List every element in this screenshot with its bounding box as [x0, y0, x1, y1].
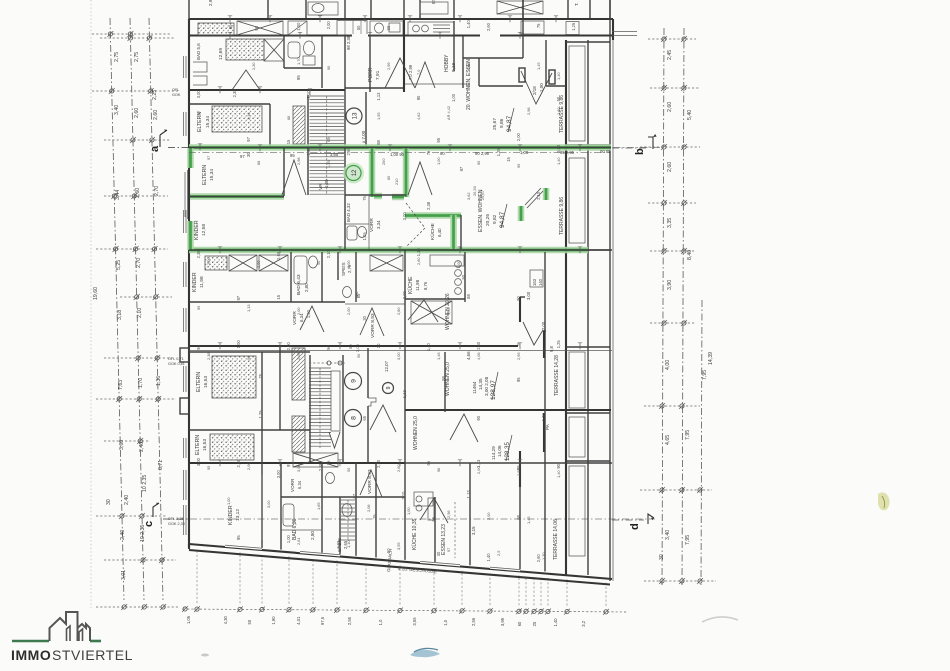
svg-text:1,36: 1,36 [156, 376, 162, 386]
svg-text:95: 95 [290, 153, 295, 158]
svg-text:3,44: 3,44 [115, 190, 121, 200]
svg-text:8,76: 8,76 [423, 281, 428, 290]
svg-text:2,00: 2,00 [346, 260, 351, 268]
svg-text:1,00: 1,00 [226, 497, 231, 505]
svg-text:11464: 11464 [472, 381, 477, 394]
svg-text:PORR: PORR [368, 67, 374, 82]
svg-text:1,40: 1,40 [306, 147, 311, 156]
svg-text:7,63: 7,63 [118, 380, 124, 390]
svg-text:2,00: 2,00 [346, 307, 351, 315]
svg-text:2,60: 2,60 [416, 257, 421, 265]
svg-text:2,98: 2,98 [526, 107, 531, 115]
svg-text:1,00: 1,00 [406, 507, 411, 515]
svg-text:1,00: 1,00 [286, 534, 291, 543]
svg-text:1,40: 1,40 [306, 309, 311, 318]
svg-text:3,55: 3,55 [396, 542, 401, 550]
svg-text:15,34: 15,34 [205, 116, 211, 128]
svg-text:ELTERN: ELTERN [196, 372, 202, 392]
svg-text:97: 97 [236, 295, 241, 300]
svg-text:97,6: 97,6 [320, 616, 325, 625]
svg-text:50: 50 [461, 274, 466, 279]
svg-text:2,61: 2,61 [296, 537, 301, 545]
svg-text:14,39: 14,39 [708, 352, 714, 365]
svg-text:2,06: 2,06 [296, 352, 301, 360]
svg-text:2,56: 2,56 [446, 510, 451, 518]
svg-text:c: c [143, 521, 155, 527]
svg-text:97: 97 [286, 462, 291, 467]
svg-text:2,97: 2,97 [208, 0, 213, 6]
svg-text:00 05: 00 05 [600, 149, 611, 154]
svg-text:2,80: 2,80 [304, 283, 309, 292]
svg-text:97: 97 [196, 111, 201, 115]
svg-text:2,80: 2,80 [310, 531, 315, 540]
svg-text:1,40: 1,40 [426, 342, 431, 351]
svg-text:97: 97 [352, 493, 357, 498]
svg-text:2,00: 2,00 [286, 342, 291, 351]
svg-text:3,00: 3,00 [196, 90, 201, 99]
svg-text:2,70: 2,70 [154, 186, 160, 196]
svg-text:30: 30 [436, 551, 441, 556]
svg-text:88: 88 [286, 116, 291, 120]
svg-text:1,13: 1,13 [376, 92, 381, 101]
svg-text:60: 60 [517, 621, 522, 626]
svg-text:VORR: VORR [369, 218, 375, 232]
svg-text:3,65: 3,65 [330, 152, 339, 157]
svg-text:50: 50 [356, 25, 361, 30]
svg-text:2,00: 2,00 [336, 540, 341, 549]
svg-text:3,55: 3,55 [412, 617, 417, 626]
svg-text:16,53: 16,53 [203, 376, 209, 388]
svg-text:AR 4,42: AR 4,42 [446, 106, 451, 120]
svg-text:75: 75 [258, 373, 263, 378]
svg-text:96: 96 [436, 468, 441, 472]
svg-text:97: 97 [446, 548, 451, 552]
svg-text:4,65: 4,65 [665, 435, 671, 445]
svg-text:1,0: 1,0 [443, 619, 448, 625]
svg-text:5,25: 5,25 [116, 260, 122, 270]
svg-text:9,19: 9,19 [451, 62, 457, 72]
svg-text:3,35: 3,35 [667, 218, 673, 228]
svg-text:9,82: 9,82 [492, 214, 498, 224]
svg-text:90: 90 [228, 24, 233, 29]
svg-text:BAD 6,43: BAD 6,43 [296, 274, 302, 295]
svg-text:KINDER: KINDER [194, 220, 200, 240]
svg-text:2,00: 2,00 [456, 260, 461, 268]
svg-text:15: 15 [326, 460, 331, 465]
svg-text:97: 97 [246, 136, 251, 141]
svg-text:3,00: 3,00 [276, 470, 281, 479]
svg-text:12,07: 12,07 [384, 360, 389, 372]
svg-text:3,00: 3,00 [396, 352, 401, 360]
svg-text:1,90: 1,90 [271, 616, 276, 625]
svg-text:50: 50 [247, 619, 252, 624]
svg-text:1,13: 1,13 [246, 304, 251, 312]
svg-text:5,40: 5,40 [687, 110, 693, 120]
svg-text:95: 95 [206, 466, 211, 470]
svg-text:65: 65 [426, 460, 431, 465]
svg-text:3,00: 3,00 [402, 212, 407, 221]
svg-text:25,67: 25,67 [480, 190, 485, 200]
svg-text:2,38: 2,38 [196, 250, 201, 259]
svg-text:9: 9 [351, 379, 358, 383]
svg-text:1,65: 1,65 [316, 502, 321, 510]
svg-text:2,25: 2,25 [152, 90, 158, 100]
svg-text:75: 75 [426, 150, 431, 155]
svg-text:3,15: 3,15 [471, 526, 476, 535]
svg-text:1,20: 1,20 [324, 179, 329, 188]
svg-text:2,56: 2,56 [471, 617, 476, 626]
svg-text:2,75: 2,75 [134, 52, 140, 62]
svg-text:KÜCHE 10,35: KÜCHE 10,35 [411, 518, 418, 550]
svg-text:6,34: 6,34 [297, 480, 302, 489]
svg-text:88: 88 [376, 140, 381, 145]
svg-text:97: 97 [459, 166, 464, 171]
svg-text:2,40: 2,40 [124, 495, 130, 505]
svg-text:PA: PA [545, 423, 550, 430]
svg-text:50: 50 [556, 96, 561, 101]
svg-text:15: 15 [276, 294, 281, 299]
svg-text:OFL 2,35: OFL 2,35 [168, 517, 184, 521]
svg-text:1,40: 1,40 [556, 157, 561, 165]
svg-text:11,98: 11,98 [415, 279, 420, 291]
svg-text:1,10: 1,10 [346, 540, 351, 548]
svg-text:2/18: 2/18 [532, 86, 537, 95]
svg-text:9,8: 9,8 [549, 346, 554, 352]
svg-text:88: 88 [441, 376, 446, 381]
svg-text:50: 50 [386, 548, 391, 553]
svg-text:2,10: 2,10 [137, 308, 143, 318]
svg-text:2,00: 2,00 [486, 512, 491, 520]
svg-text:1,13: 1,13 [466, 490, 471, 499]
svg-text:2,10: 2,10 [536, 191, 541, 200]
svg-text:TERRASSE 9,86: TERRASSE 9,86 [559, 197, 565, 235]
svg-text:95: 95 [196, 306, 201, 310]
svg-text:BAD 5,6: BAD 5,6 [196, 43, 201, 60]
svg-text:4,01: 4,01 [296, 616, 301, 625]
svg-text:20,39: 20,39 [472, 186, 477, 196]
svg-text:ELTERN: ELTERN [195, 435, 201, 455]
svg-text:2,10: 2,10 [376, 459, 381, 468]
svg-text:90: 90 [416, 95, 421, 100]
svg-text:90: 90 [440, 151, 445, 156]
svg-text:x 7,00: x 7,00 [361, 130, 366, 143]
svg-text:1,00: 1,00 [236, 340, 241, 349]
svg-text:1,60: 1,60 [556, 107, 561, 115]
svg-text:2,60: 2,60 [134, 108, 140, 118]
svg-text:25: 25 [532, 621, 537, 626]
svg-text:14,35: 14,35 [478, 378, 483, 390]
svg-text:88: 88 [256, 161, 261, 165]
svg-text:9,86: 9,86 [499, 118, 505, 128]
svg-text:7,0: 7,0 [416, 69, 421, 75]
svg-text:TERRASSE 14,28: TERRASSE 14,28 [554, 355, 560, 396]
svg-text:2,60: 2,60 [135, 188, 141, 198]
svg-text:WOHNEN 25,0: WOHNEN 25,0 [413, 416, 419, 450]
svg-text:2,00: 2,00 [402, 290, 407, 299]
svg-text:9: 9 [386, 386, 392, 389]
svg-text:65: 65 [362, 415, 367, 420]
svg-text:2,60: 2,60 [667, 162, 673, 172]
svg-text:3,90: 3,90 [667, 280, 673, 290]
svg-text:97: 97 [206, 156, 211, 160]
svg-text:KÜCHE: KÜCHE [407, 276, 414, 294]
svg-text:25,67: 25,67 [492, 118, 498, 130]
svg-text:95: 95 [254, 25, 259, 30]
svg-text:12: 12 [352, 170, 358, 177]
svg-text:6,40: 6,40 [437, 228, 442, 237]
svg-text:1,45: 1,45 [526, 516, 531, 524]
svg-text:7,91: 7,91 [375, 70, 381, 80]
svg-text:1,70: 1,70 [296, 57, 301, 65]
svg-text:65: 65 [356, 293, 361, 298]
svg-text:1,70: 1,70 [138, 378, 144, 388]
svg-text:2,06: 2,06 [355, 343, 360, 352]
svg-text:2,30: 2,30 [251, 62, 256, 70]
svg-text:2,38: 2,38 [236, 459, 241, 468]
svg-text:2,60: 2,60 [667, 102, 673, 112]
svg-text:95: 95 [516, 164, 521, 168]
svg-text:ELTERN: ELTERN [202, 165, 208, 185]
svg-text:VORR: VORR [290, 478, 295, 492]
svg-text:2,00: 2,00 [246, 462, 251, 470]
svg-text:2,60: 2,60 [153, 110, 159, 120]
svg-text:VORR 8,93: VORR 8,93 [370, 313, 376, 338]
svg-text:2,95: 2,95 [516, 352, 521, 360]
svg-text:20,26: 20,26 [485, 214, 491, 226]
svg-text:2,10: 2,10 [326, 250, 331, 259]
svg-text:95: 95 [436, 137, 441, 142]
svg-text:1,40: 1,40 [556, 72, 561, 80]
svg-text:4,30: 4,30 [223, 615, 228, 624]
svg-text:210: 210 [394, 178, 399, 185]
svg-text:16,53: 16,53 [202, 439, 208, 451]
svg-text:1,45: 1,45 [536, 62, 541, 70]
svg-text:2,38: 2,38 [206, 352, 211, 360]
svg-text:3,34: 3,34 [376, 220, 381, 229]
svg-text:50: 50 [348, 344, 353, 349]
svg-text:1,13: 1,13 [402, 390, 407, 399]
svg-text:BAD 6,30: BAD 6,30 [292, 518, 298, 540]
svg-text:2,00: 2,00 [476, 466, 481, 474]
svg-text:2,45: 2,45 [667, 50, 673, 60]
svg-text:95: 95 [296, 75, 301, 80]
svg-text:7,0 2,99: 7,0 2,99 [408, 64, 413, 80]
svg-text:3,60: 3,60 [119, 440, 125, 450]
svg-text:1,25: 1,25 [571, 22, 576, 31]
svg-text:1,00: 1,00 [451, 93, 456, 102]
svg-text:b: b [634, 148, 646, 155]
svg-text:8: 8 [351, 416, 358, 420]
svg-text:2,06: 2,06 [366, 504, 371, 512]
svg-text:94,87: 94,87 [499, 211, 506, 228]
svg-text:1,55: 1,55 [326, 160, 331, 168]
svg-text:7,95: 7,95 [685, 535, 691, 545]
svg-text:2,95: 2,95 [516, 468, 521, 476]
svg-text:75: 75 [536, 23, 541, 28]
svg-text:1,25: 1,25 [362, 232, 367, 241]
svg-text:2,40: 2,40 [120, 530, 126, 540]
svg-text:19,60: 19,60 [93, 287, 99, 300]
svg-text:1,40: 1,40 [446, 307, 451, 315]
svg-text:2,38: 2,38 [318, 462, 323, 471]
svg-text:3,01: 3,01 [121, 570, 127, 580]
svg-text:65: 65 [431, 516, 436, 521]
svg-text:200: 200 [381, 158, 386, 165]
svg-text:90 2,96: 90 2,96 [475, 151, 490, 156]
svg-text:10 2,35: 10 2,35 [142, 475, 148, 492]
svg-text:KINDER: KINDER [192, 272, 198, 292]
svg-text:2,98: 2,98 [296, 157, 301, 165]
svg-text:90: 90 [516, 295, 521, 300]
svg-text:4,62: 4,62 [416, 112, 421, 120]
svg-text:2,60: 2,60 [396, 307, 401, 315]
svg-text:2,55: 2,55 [347, 616, 352, 625]
svg-text:12,69: 12,69 [218, 48, 224, 60]
svg-text:3,18: 3,18 [246, 112, 251, 120]
svg-text:90: 90 [556, 463, 561, 468]
svg-text:4,00: 4,00 [665, 360, 671, 370]
svg-text:97: 97 [240, 154, 245, 159]
svg-text:1,00: 1,00 [436, 157, 441, 165]
svg-text:2,60: 2,60 [476, 341, 481, 350]
svg-text:2,60: 2,60 [486, 22, 491, 31]
svg-text:13: 13 [351, 112, 358, 120]
svg-text:50: 50 [326, 345, 331, 350]
svg-text:2,40: 2,40 [139, 442, 145, 452]
svg-text:3,40: 3,40 [665, 530, 671, 540]
svg-text:15,34: 15,34 [209, 169, 215, 181]
svg-text:2,38: 2,38 [232, 89, 237, 98]
svg-text:3,00: 3,00 [296, 464, 301, 472]
svg-text:65: 65 [326, 137, 331, 142]
svg-text:14,06: 14,06 [497, 445, 502, 457]
svg-text:3,40: 3,40 [114, 105, 120, 115]
svg-text:2,00: 2,00 [516, 132, 521, 141]
svg-text:1,25: 1,25 [496, 148, 501, 157]
svg-text:1,48: 1,48 [436, 352, 441, 360]
svg-text:88: 88 [466, 294, 471, 299]
svg-text:2,60: 2,60 [346, 147, 351, 156]
svg-text:1,00 90: 1,00 90 [390, 152, 405, 157]
svg-text:IMMO: IMMO [11, 647, 51, 663]
svg-text:2,00: 2,00 [206, 257, 211, 265]
svg-text:1,00: 1,00 [520, 150, 529, 155]
svg-text:2,00: 2,00 [541, 321, 546, 330]
svg-text:90: 90 [476, 415, 481, 420]
svg-text:2,10: 2,10 [401, 491, 406, 500]
svg-text:4,66: 4,66 [466, 351, 471, 360]
svg-text:3,00: 3,00 [556, 144, 561, 153]
svg-text:a: a [149, 145, 161, 152]
svg-text:ESSEN: ESSEN [431, 0, 436, 4]
svg-text:3,00: 3,00 [196, 457, 201, 466]
svg-text:30: 30 [376, 343, 381, 348]
svg-text:GOK: GOK [172, 93, 181, 97]
svg-text:KINDER: KINDER [228, 505, 234, 525]
svg-text:163: 163 [532, 278, 537, 286]
svg-text:75: 75 [362, 196, 367, 201]
svg-text:2,75: 2,75 [114, 52, 120, 62]
svg-text:3,00: 3,00 [526, 291, 531, 300]
svg-text:95: 95 [236, 535, 241, 540]
svg-text:OFL 0,71: OFL 0,71 [168, 357, 184, 361]
svg-text:1,13: 1,13 [416, 248, 421, 257]
svg-text:HOBBY: HOBBY [444, 54, 450, 72]
svg-text:1,55: 1,55 [376, 112, 381, 120]
svg-text:88: 88 [516, 515, 521, 520]
svg-text:2,00: 2,00 [256, 260, 261, 268]
svg-text:GOK 2,30: GOK 2,30 [168, 522, 185, 526]
svg-text:TERRASSE 14,06: TERRASSE 14,06 [553, 519, 559, 560]
svg-text:0,71: 0,71 [158, 460, 164, 470]
svg-text:13,12: 13,12 [235, 509, 241, 521]
svg-text:BAD 4,32: BAD 4,32 [346, 203, 351, 222]
svg-text:1,40: 1,40 [553, 618, 558, 627]
svg-text:7,95: 7,95 [685, 430, 691, 440]
svg-text:95: 95 [196, 344, 201, 349]
svg-text:8,40: 8,40 [687, 250, 693, 260]
svg-text:4,08: 4,08 [476, 352, 481, 360]
svg-text:OFL: OFL [172, 88, 179, 92]
svg-text:1,40: 1,40 [556, 470, 561, 478]
svg-text:2,00: 2,00 [296, 307, 301, 315]
svg-text:2,5: 2,5 [496, 551, 501, 556]
svg-text:1,40: 1,40 [466, 20, 471, 29]
svg-text:3,62: 3,62 [466, 192, 471, 200]
svg-text:3,2: 3,2 [581, 620, 586, 626]
svg-text:3,00: 3,00 [266, 500, 271, 508]
svg-text:94,87: 94,87 [506, 115, 513, 132]
svg-text:1,06: 1,06 [186, 615, 191, 624]
svg-text:30: 30 [659, 554, 665, 560]
svg-text:1,13: 1,13 [476, 459, 481, 468]
svg-text:2,00: 2,00 [326, 21, 331, 30]
svg-text:d: d [629, 523, 641, 530]
svg-text:2,99: 2,99 [386, 62, 391, 70]
svg-text:3,00 2,08: 3,00 2,08 [484, 376, 489, 396]
svg-text:KÜCHE: KÜCHE [429, 223, 436, 240]
svg-text:1,00: 1,00 [539, 83, 544, 92]
svg-text:140: 140 [538, 278, 543, 286]
svg-text:1,0: 1,0 [378, 619, 383, 625]
svg-text:114,29: 114,29 [491, 446, 496, 460]
svg-text:95: 95 [516, 377, 521, 382]
svg-text:2,38: 2,38 [426, 201, 431, 210]
svg-text:T.: T. [574, 2, 579, 6]
svg-text:1,40: 1,40 [486, 553, 491, 562]
svg-text:5,50: 5,50 [466, 62, 471, 70]
svg-text:12,58: 12,58 [201, 224, 207, 236]
svg-text:30: 30 [362, 315, 367, 320]
svg-text:15: 15 [286, 139, 291, 144]
svg-text:98 2,38: 98 2,38 [346, 35, 351, 50]
svg-text:95 2,95: 95 2,95 [560, 150, 575, 155]
svg-text:11,98: 11,98 [199, 276, 205, 288]
svg-text:2,60: 2,60 [396, 464, 401, 472]
svg-text:3,99: 3,99 [500, 617, 505, 626]
svg-text:1,00: 1,00 [541, 413, 546, 422]
svg-text:2,70: 2,70 [136, 258, 142, 268]
svg-text:15: 15 [506, 157, 511, 162]
svg-text:3,18: 3,18 [117, 310, 123, 320]
svg-text:30: 30 [246, 152, 251, 157]
svg-text:STVIERTEL: STVIERTEL [52, 647, 133, 663]
svg-text:15: 15 [372, 514, 377, 519]
svg-text:7,95: 7,95 [702, 370, 708, 380]
svg-text:1,30: 1,30 [541, 552, 546, 560]
svg-text:30: 30 [106, 499, 112, 505]
svg-text:1,25: 1,25 [258, 410, 263, 419]
